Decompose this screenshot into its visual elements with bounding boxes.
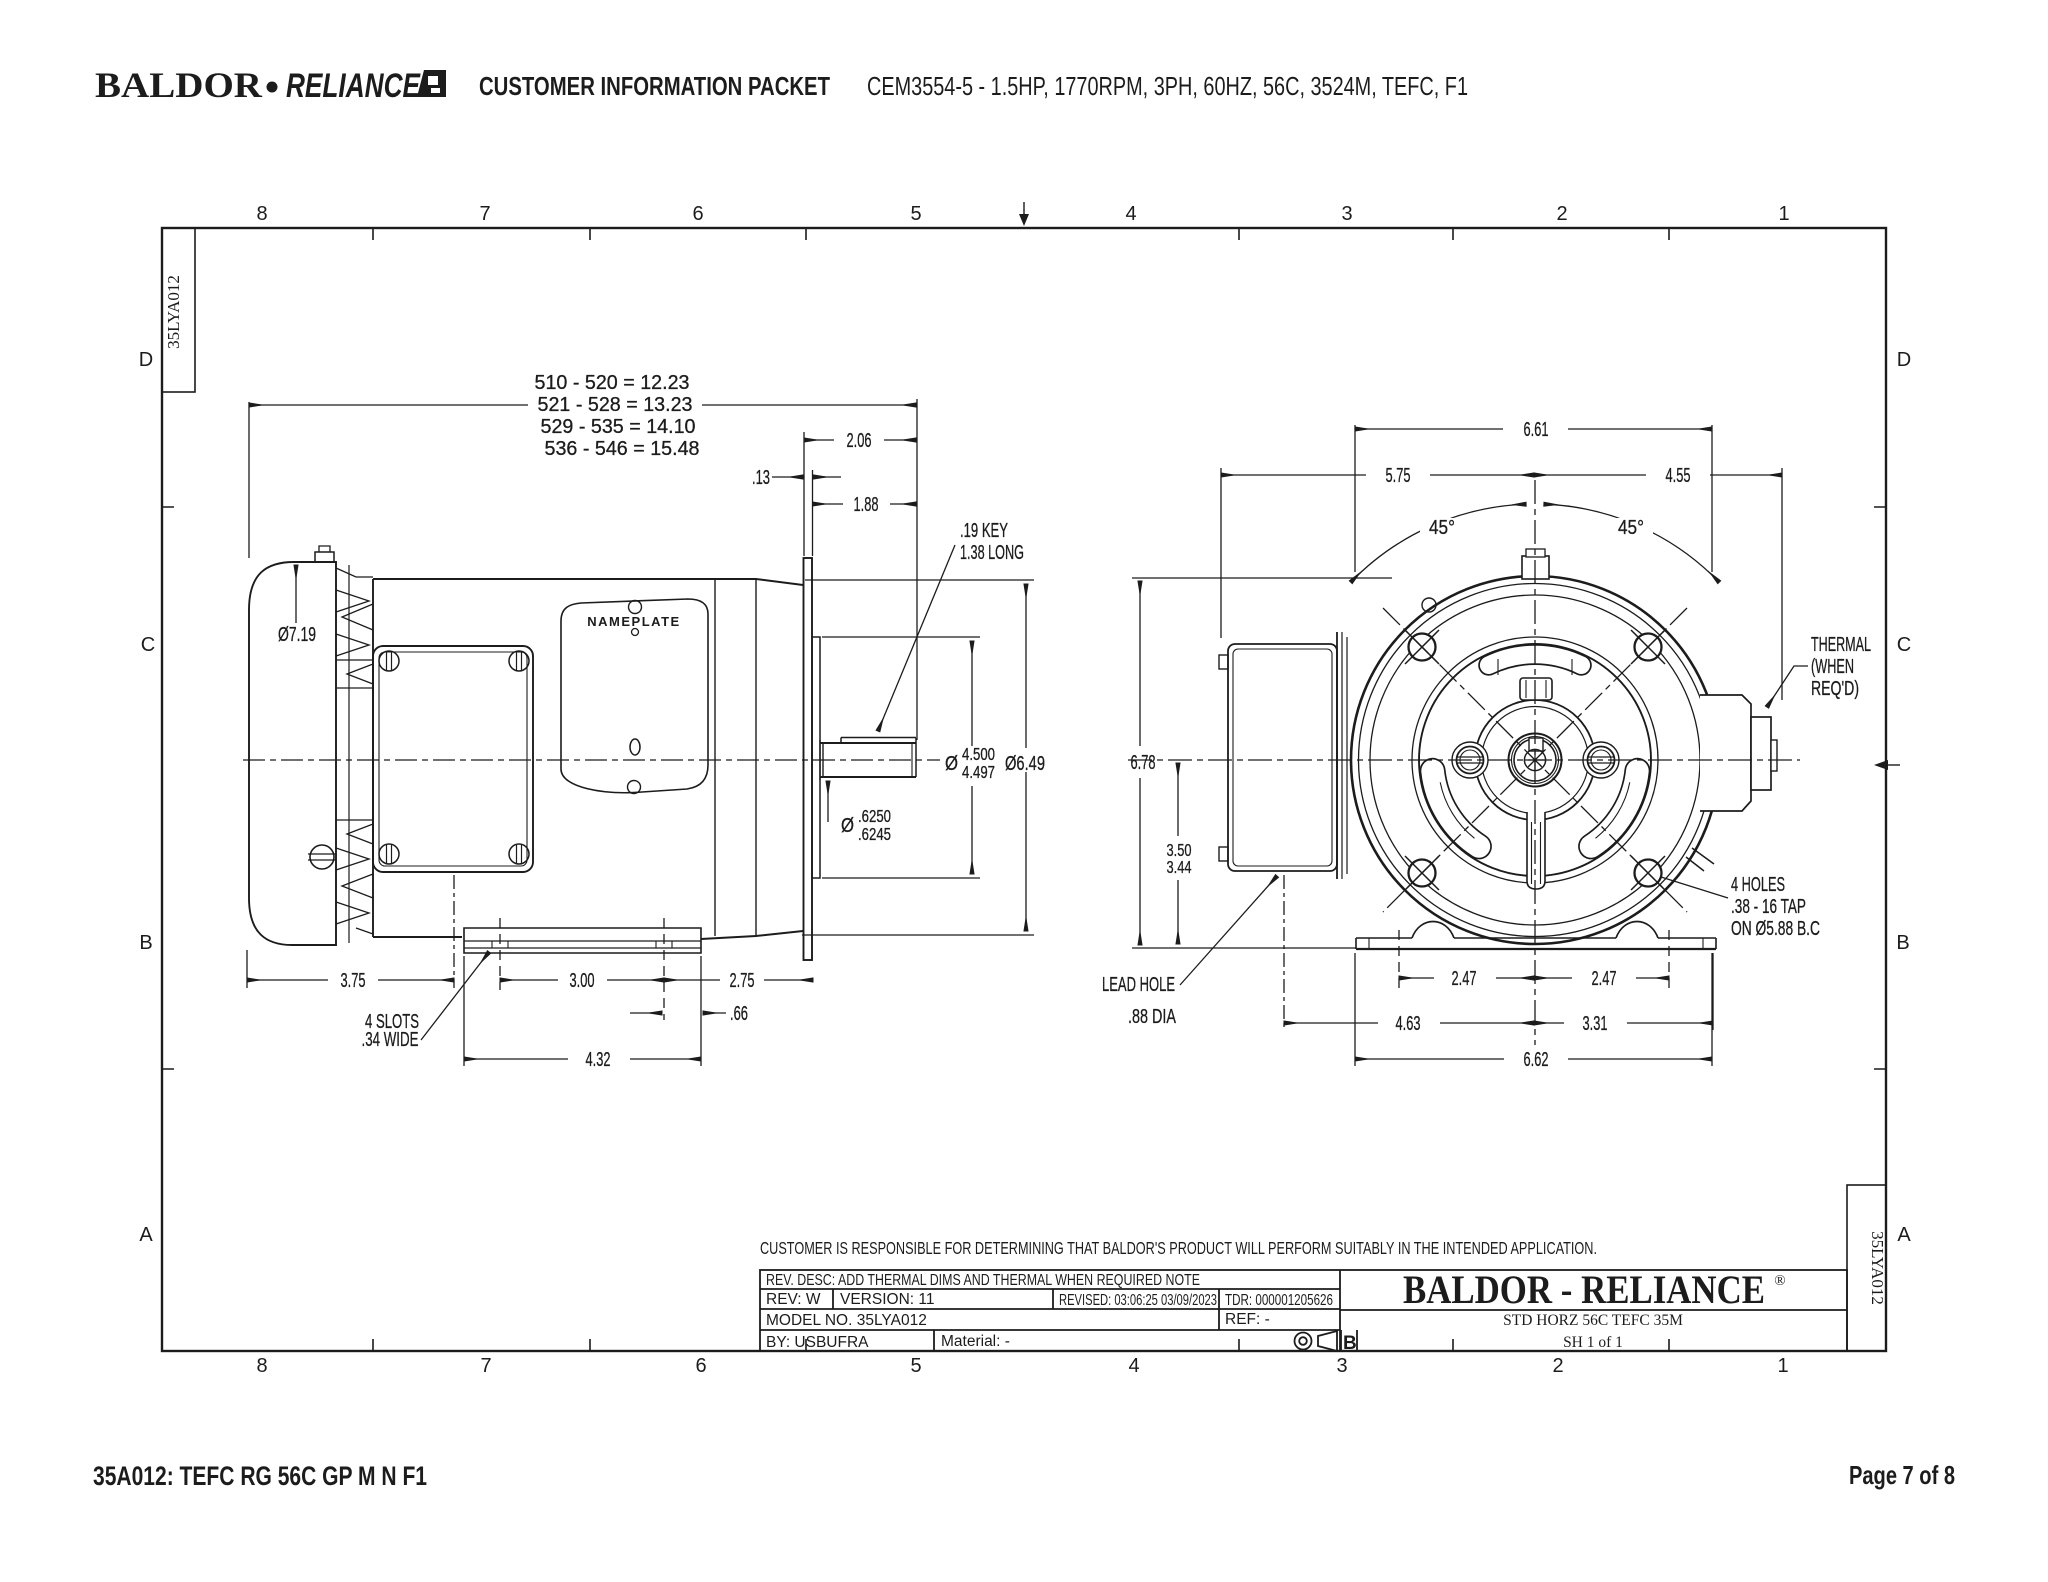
- svg-text:6.62: 6.62: [1524, 1048, 1549, 1071]
- svg-text:D: D: [1897, 349, 1911, 371]
- svg-text:2.75: 2.75: [730, 969, 755, 992]
- svg-text:.6245: .6245: [858, 824, 891, 844]
- svg-text:4.63: 4.63: [1396, 1012, 1421, 1035]
- svg-text:®: ®: [1774, 1273, 1785, 1289]
- svg-text:5: 5: [910, 1355, 921, 1377]
- svg-text:MODEL NO. 35LYA012: MODEL NO. 35LYA012: [766, 1312, 927, 1329]
- svg-text:VERSION: 11: VERSION: 11: [840, 1291, 934, 1308]
- svg-text:35LYA012: 35LYA012: [164, 275, 183, 349]
- svg-text:.6250: .6250: [858, 806, 891, 826]
- svg-text:536 - 546 = 15.48: 536 - 546 = 15.48: [545, 437, 700, 460]
- svg-text:1.88: 1.88: [854, 493, 879, 516]
- svg-text:BALDOR: BALDOR: [95, 65, 263, 105]
- svg-text:THERMAL: THERMAL: [1811, 633, 1871, 656]
- svg-text:CUSTOMER INFORMATION PACKET: CUSTOMER INFORMATION PACKET: [479, 71, 830, 101]
- svg-text:REF: -: REF: -: [1225, 1311, 1270, 1328]
- svg-text:521 - 528 = 13.23: 521 - 528 = 13.23: [538, 393, 693, 416]
- svg-text:BY: USBUFRA: BY: USBUFRA: [766, 1334, 869, 1351]
- svg-text:3.75: 3.75: [341, 969, 366, 992]
- svg-text:45°: 45°: [1429, 516, 1455, 539]
- svg-text:45°: 45°: [1618, 516, 1644, 539]
- svg-text:1: 1: [1777, 1355, 1788, 1377]
- svg-text:Ø6.49: Ø6.49: [1005, 752, 1045, 775]
- svg-text:4.55: 4.55: [1666, 464, 1691, 487]
- svg-text:6.78: 6.78: [1131, 751, 1156, 774]
- svg-text:(WHEN: (WHEN: [1811, 655, 1854, 678]
- svg-text:35LYA012: 35LYA012: [1868, 1231, 1887, 1305]
- svg-text:C: C: [1897, 634, 1911, 656]
- svg-text:5.75: 5.75: [1386, 464, 1411, 487]
- svg-text:C: C: [141, 634, 155, 656]
- svg-text:2: 2: [1552, 1355, 1563, 1377]
- svg-text:3: 3: [1336, 1355, 1347, 1377]
- svg-text:REQ'D): REQ'D): [1811, 677, 1859, 700]
- svg-text:.19 KEY: .19 KEY: [960, 519, 1008, 542]
- svg-text:3: 3: [1341, 203, 1352, 225]
- svg-text:REV: W: REV: W: [766, 1291, 821, 1308]
- svg-text:ON Ø5.88 B.C: ON Ø5.88 B.C: [1731, 917, 1820, 940]
- svg-text:REV. DESC: ADD THERMAL DIMS AN: REV. DESC: ADD THERMAL DIMS AND THERMAL …: [766, 1272, 1200, 1289]
- svg-text:Ø7.19: Ø7.19: [278, 623, 316, 646]
- svg-text:1: 1: [1778, 203, 1789, 225]
- svg-text:RELIANCE: RELIANCE: [286, 67, 421, 105]
- svg-text:6: 6: [692, 203, 703, 225]
- svg-text:2: 2: [1556, 203, 1567, 225]
- svg-text:NAMEPLATE: NAMEPLATE: [587, 614, 680, 629]
- svg-text:.38 - 16 TAP: .38 - 16 TAP: [1731, 895, 1806, 918]
- svg-text:7: 7: [479, 203, 490, 225]
- svg-text:4.32: 4.32: [586, 1048, 611, 1071]
- svg-text:3.00: 3.00: [570, 969, 595, 992]
- svg-text:8: 8: [256, 203, 267, 225]
- svg-text:SH 1 of 1: SH 1 of 1: [1563, 1334, 1623, 1351]
- svg-text:510 - 520 = 12.23: 510 - 520 = 12.23: [535, 371, 690, 394]
- svg-text:5: 5: [910, 203, 921, 225]
- svg-text:3.44: 3.44: [1167, 857, 1192, 877]
- svg-text:Ø: Ø: [945, 753, 958, 775]
- svg-text:CUSTOMER IS RESPONSIBLE FOR DE: CUSTOMER IS RESPONSIBLE FOR DETERMINING …: [760, 1238, 1597, 1258]
- svg-text:Material: -: Material: -: [941, 1333, 1010, 1350]
- svg-text:35A012: TEFC RG 56C GP M N F1: 35A012: TEFC RG 56C GP M N F1: [93, 1461, 427, 1491]
- svg-text:B: B: [139, 932, 152, 954]
- svg-text:B: B: [1343, 1333, 1357, 1354]
- svg-text:6.61: 6.61: [1524, 418, 1549, 441]
- svg-text:REVISED: 03:06:25 03/09/2023: REVISED: 03:06:25 03/09/2023: [1059, 1292, 1217, 1309]
- svg-text:.34 WIDE: .34 WIDE: [362, 1028, 419, 1051]
- svg-text:CEM3554-5 - 1.5HP, 1770RPM, 3P: CEM3554-5 - 1.5HP, 1770RPM, 3PH, 60HZ, 5…: [867, 71, 1468, 101]
- svg-text:STD HORZ 56C TEFC 35M: STD HORZ 56C TEFC 35M: [1503, 1312, 1683, 1329]
- svg-text:2.06: 2.06: [847, 429, 872, 452]
- svg-text:LEAD HOLE: LEAD HOLE: [1102, 973, 1175, 996]
- svg-text:3.31: 3.31: [1583, 1012, 1608, 1035]
- svg-text:1.38 LONG: 1.38 LONG: [960, 541, 1024, 564]
- svg-text:Page 7 of 8: Page 7 of 8: [1849, 1460, 1955, 1490]
- svg-text:4 HOLES: 4 HOLES: [1731, 873, 1785, 896]
- svg-text:7: 7: [480, 1355, 491, 1377]
- svg-text:TDR: 000001205626: TDR: 000001205626: [1225, 1292, 1333, 1309]
- svg-text:.88 DIA: .88 DIA: [1128, 1005, 1176, 1028]
- svg-text:.66: .66: [730, 1002, 748, 1025]
- svg-text:2.47: 2.47: [1452, 967, 1477, 990]
- svg-text:.13: .13: [752, 466, 770, 489]
- svg-text:A: A: [1897, 1224, 1911, 1246]
- svg-text:Ø: Ø: [841, 815, 854, 837]
- svg-text:4: 4: [1128, 1355, 1139, 1377]
- svg-text:6: 6: [695, 1355, 706, 1377]
- svg-text:4: 4: [1125, 203, 1136, 225]
- svg-text:529 - 535 = 14.10: 529 - 535 = 14.10: [541, 415, 696, 438]
- svg-text:4.500: 4.500: [962, 744, 995, 764]
- svg-text:B: B: [1896, 932, 1909, 954]
- svg-text:4.497: 4.497: [962, 762, 995, 782]
- svg-text:8: 8: [256, 1355, 267, 1377]
- svg-text:2.47: 2.47: [1592, 967, 1617, 990]
- svg-text:A: A: [139, 1224, 153, 1246]
- svg-text:BALDOR - RELIANCE: BALDOR - RELIANCE: [1403, 1267, 1765, 1312]
- svg-text:D: D: [139, 349, 153, 371]
